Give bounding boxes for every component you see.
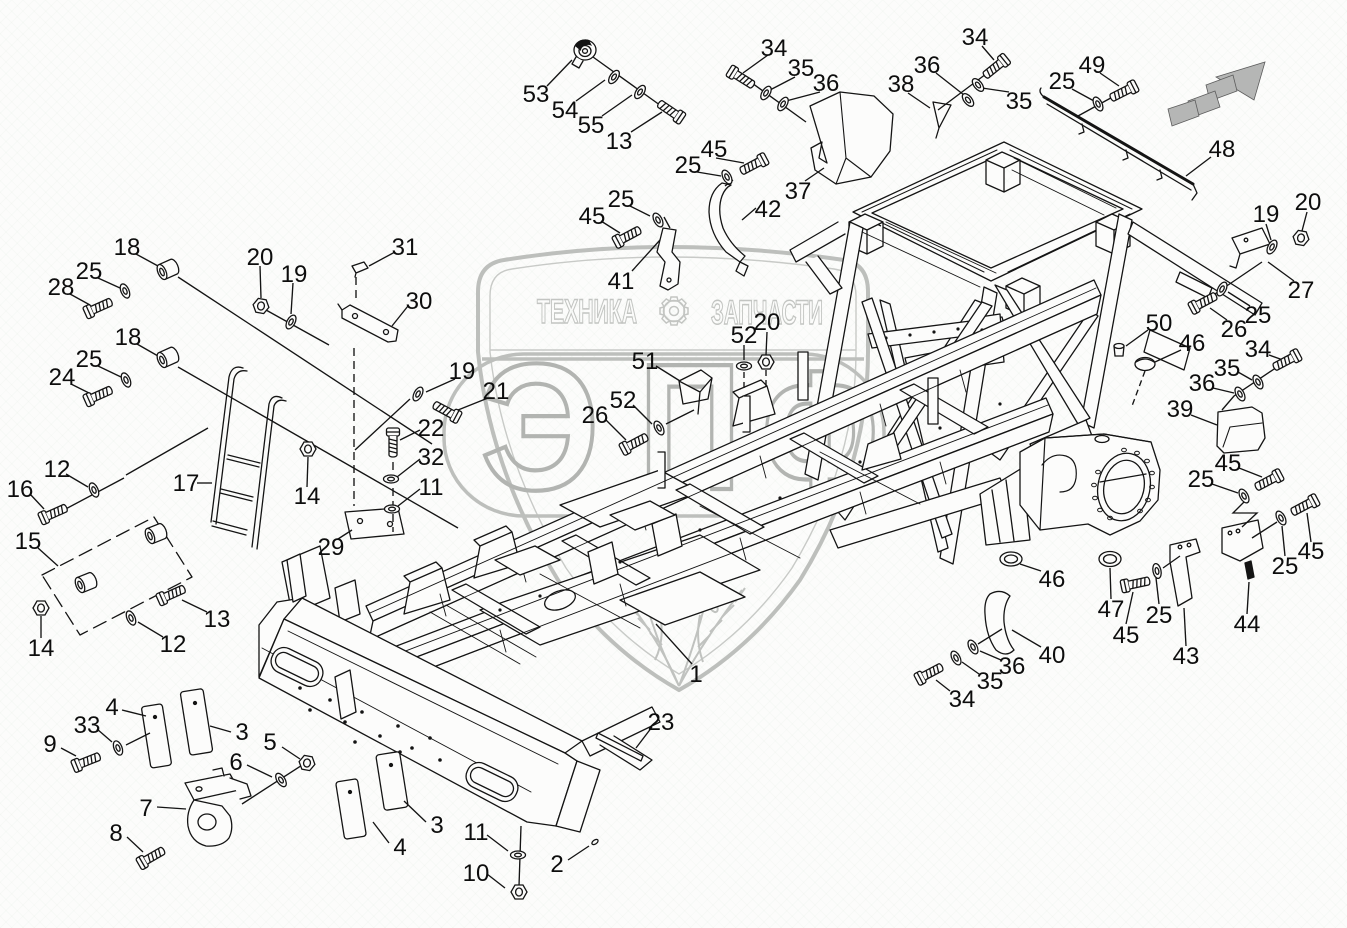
svg-text:28: 28 (48, 274, 75, 301)
svg-text:52: 52 (610, 387, 637, 414)
svg-text:17: 17 (173, 470, 200, 497)
svg-text:41: 41 (608, 268, 635, 295)
svg-text:38: 38 (888, 71, 915, 98)
svg-text:51: 51 (632, 348, 659, 375)
svg-text:19: 19 (1253, 201, 1280, 228)
svg-text:25: 25 (1188, 466, 1215, 493)
svg-text:25: 25 (1049, 68, 1076, 95)
svg-text:3: 3 (235, 719, 248, 746)
svg-text:19: 19 (449, 358, 476, 385)
svg-text:49: 49 (1079, 52, 1106, 79)
svg-text:27: 27 (1288, 277, 1315, 304)
svg-text:18: 18 (114, 234, 141, 261)
svg-text:22: 22 (418, 415, 445, 442)
svg-text:53: 53 (523, 81, 550, 108)
svg-text:14: 14 (294, 483, 321, 510)
svg-text:4: 4 (105, 694, 118, 721)
svg-text:15: 15 (15, 528, 42, 555)
svg-text:25: 25 (1146, 602, 1173, 629)
svg-text:31: 31 (392, 234, 419, 261)
svg-text:29: 29 (318, 534, 345, 561)
svg-text:45: 45 (1215, 450, 1242, 477)
svg-text:13: 13 (204, 606, 231, 633)
svg-text:54: 54 (552, 97, 579, 124)
svg-text:11: 11 (419, 474, 444, 501)
svg-text:30: 30 (406, 288, 433, 315)
svg-text:47: 47 (1098, 596, 1125, 623)
svg-text:14: 14 (28, 635, 55, 662)
svg-text:40: 40 (1039, 642, 1066, 669)
svg-text:5: 5 (263, 729, 276, 756)
svg-text:25: 25 (608, 186, 635, 213)
svg-text:7: 7 (139, 795, 152, 822)
svg-text:4: 4 (393, 834, 406, 861)
svg-text:44: 44 (1234, 611, 1261, 638)
svg-text:45: 45 (701, 136, 728, 163)
svg-text:45: 45 (579, 203, 606, 230)
svg-text:3: 3 (430, 812, 443, 839)
svg-text:26: 26 (1221, 316, 1248, 343)
svg-text:8: 8 (109, 820, 122, 847)
svg-text:39: 39 (1167, 396, 1194, 423)
svg-text:46: 46 (1179, 330, 1206, 357)
svg-text:ТЕХНИКА: ТЕХНИКА (537, 293, 637, 331)
svg-text:9: 9 (43, 731, 56, 758)
svg-text:35: 35 (1214, 355, 1241, 382)
svg-text:24: 24 (49, 364, 76, 391)
svg-text:34: 34 (1245, 336, 1272, 363)
svg-text:36: 36 (1189, 370, 1216, 397)
svg-text:19: 19 (281, 261, 308, 288)
svg-text:6: 6 (229, 749, 242, 776)
svg-text:42: 42 (755, 196, 782, 223)
svg-text:37: 37 (785, 178, 812, 205)
svg-text:45: 45 (1113, 622, 1140, 649)
svg-text:50: 50 (1146, 310, 1173, 337)
svg-text:36: 36 (914, 52, 941, 79)
svg-text:21: 21 (483, 378, 510, 405)
svg-text:25: 25 (76, 346, 103, 373)
svg-text:18: 18 (115, 324, 142, 351)
svg-text:33: 33 (74, 712, 101, 739)
svg-text:12: 12 (160, 631, 187, 658)
svg-text:2: 2 (550, 851, 563, 878)
svg-text:34: 34 (949, 686, 976, 713)
svg-text:25: 25 (1272, 553, 1299, 580)
svg-text:16: 16 (7, 476, 34, 503)
svg-text:36: 36 (813, 70, 840, 97)
svg-text:11: 11 (464, 819, 489, 846)
svg-text:35: 35 (1006, 88, 1033, 115)
svg-text:23: 23 (648, 709, 675, 736)
svg-text:55: 55 (578, 112, 605, 139)
svg-text:46: 46 (1039, 566, 1066, 593)
svg-text:45: 45 (1298, 538, 1325, 565)
svg-text:48: 48 (1209, 136, 1236, 163)
svg-text:32: 32 (418, 444, 445, 471)
svg-text:43: 43 (1173, 643, 1200, 670)
svg-text:12: 12 (44, 456, 71, 483)
svg-text:20: 20 (1295, 189, 1322, 216)
svg-text:26: 26 (582, 402, 609, 429)
svg-text:34: 34 (761, 35, 788, 62)
svg-text:25: 25 (76, 258, 103, 285)
svg-text:1: 1 (689, 661, 702, 688)
svg-text:35: 35 (788, 55, 815, 82)
svg-text:25: 25 (675, 152, 702, 179)
svg-text:13: 13 (606, 128, 633, 155)
svg-text:10: 10 (463, 860, 490, 887)
svg-text:20: 20 (247, 244, 274, 271)
svg-text:25: 25 (1245, 302, 1272, 329)
svg-text:35: 35 (977, 668, 1004, 695)
svg-text:34: 34 (962, 24, 989, 51)
svg-text:20: 20 (754, 309, 781, 336)
